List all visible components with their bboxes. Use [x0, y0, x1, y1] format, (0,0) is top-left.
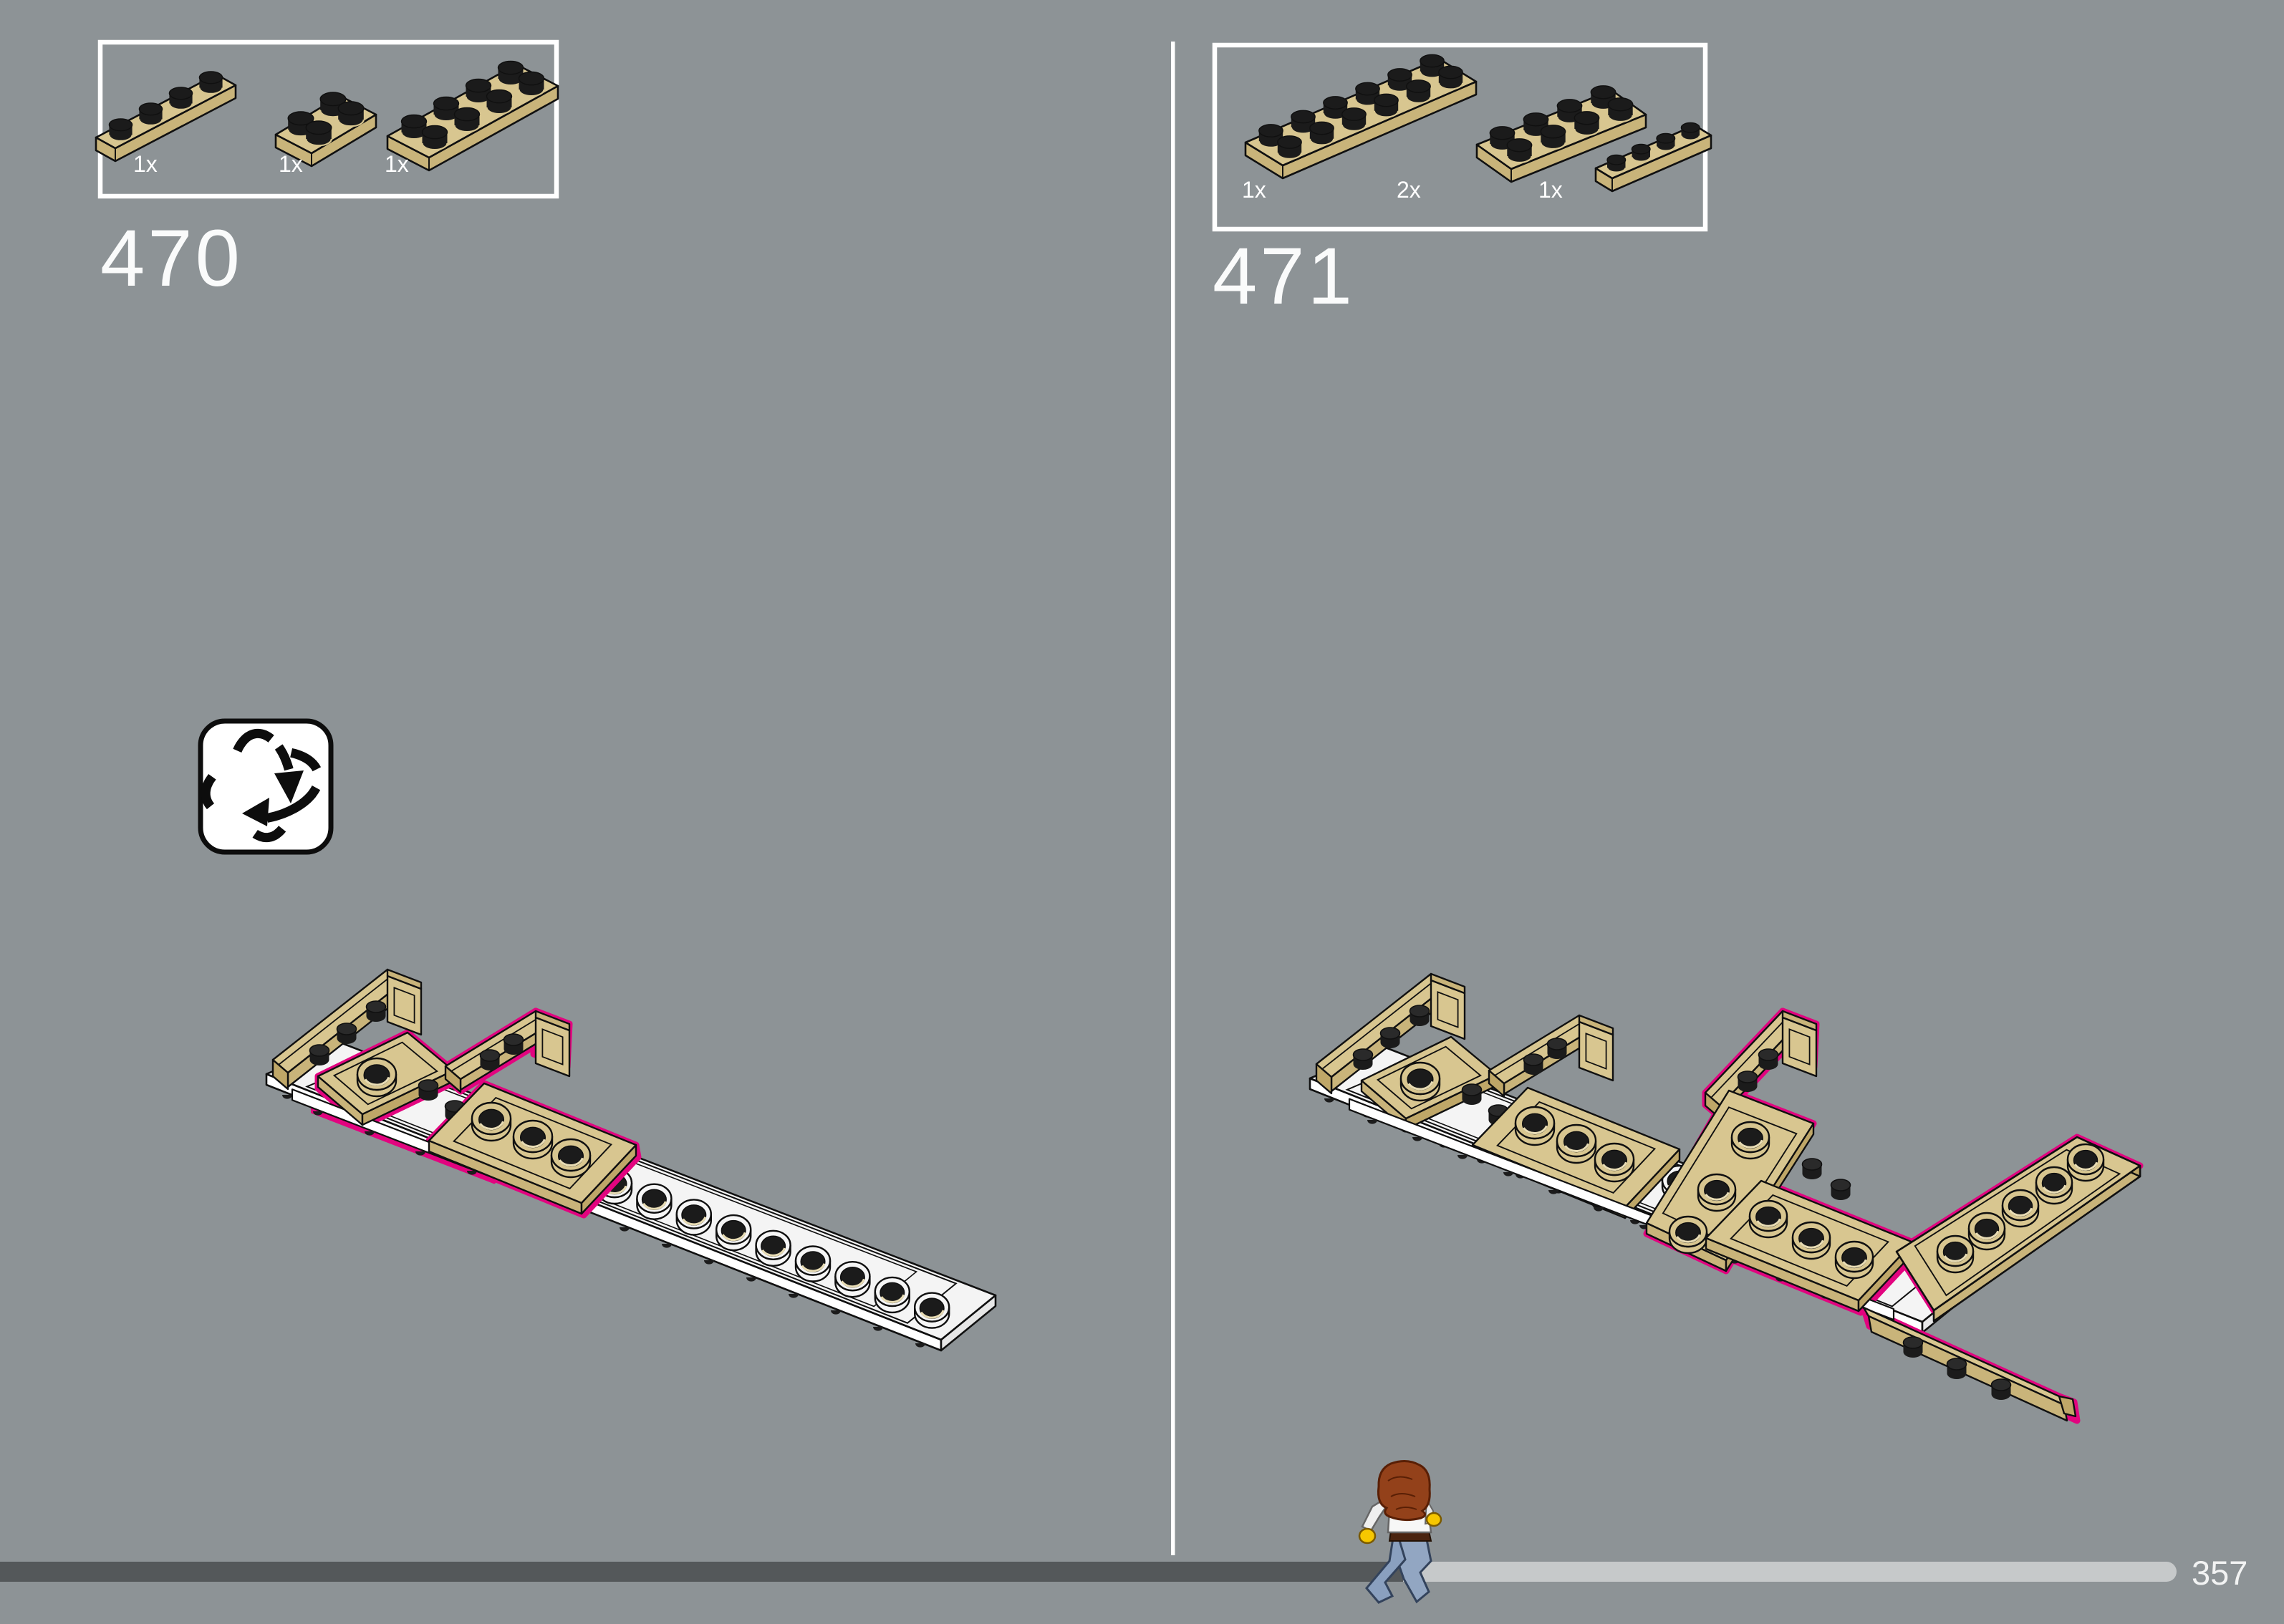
svg-text:357: 357 — [2192, 1554, 2247, 1592]
svg-text:471: 471 — [1213, 231, 1355, 321]
svg-text:1x: 1x — [133, 151, 158, 177]
svg-text:470: 470 — [100, 213, 243, 303]
svg-text:1x: 1x — [1242, 177, 1266, 203]
svg-text:1x: 1x — [1538, 177, 1563, 203]
svg-text:1x: 1x — [279, 151, 303, 177]
svg-text:2x: 2x — [1397, 177, 1421, 203]
svg-text:1x: 1x — [385, 151, 409, 177]
